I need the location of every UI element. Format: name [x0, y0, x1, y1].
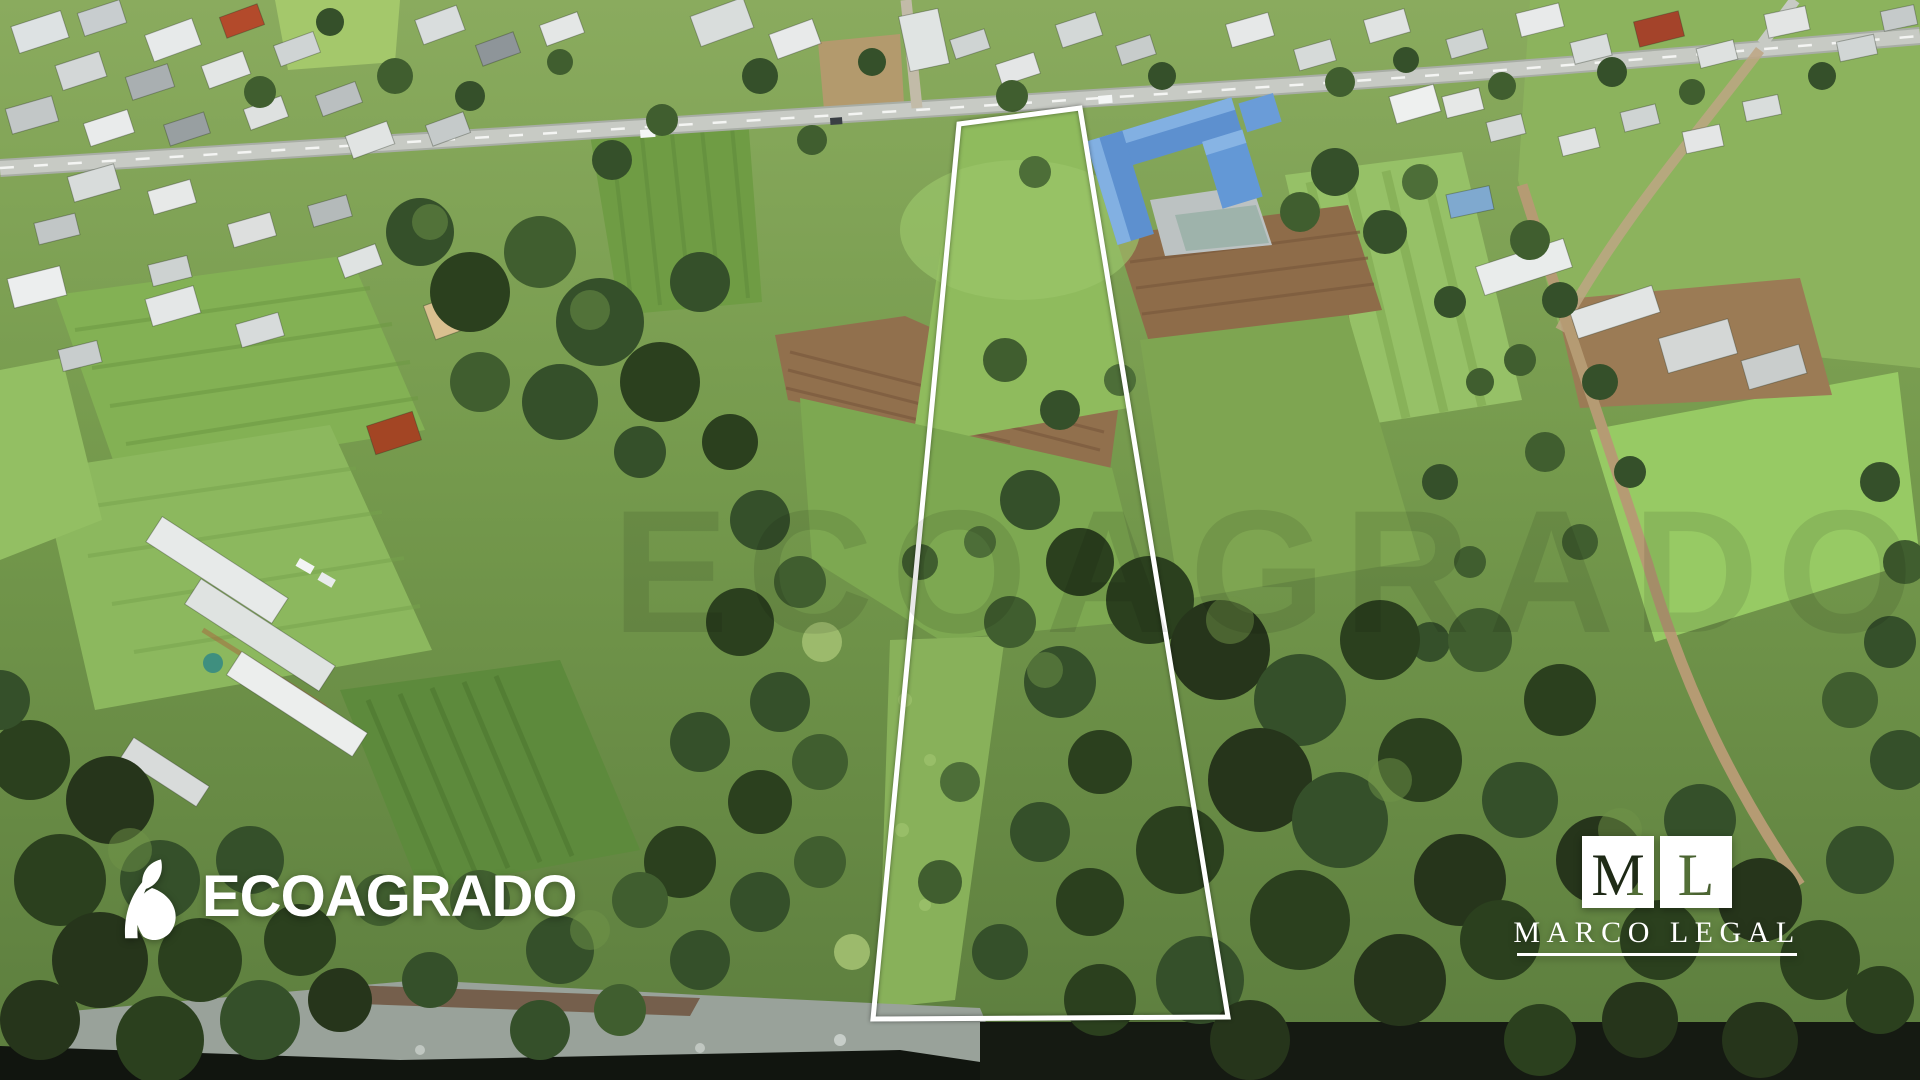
ecoagrado-logo: ECOAGRADO [116, 854, 576, 940]
watermark-text: ECOAGRADO [612, 475, 1920, 670]
marco-legal-logo: M L MARCO LEGAL [1500, 826, 1810, 971]
aerial-photo: ECOAGRADO ECOAGRADO M L MARCO LEGAL [0, 0, 1920, 1080]
ecoagrado-wordmark: ECOAGRADO [202, 868, 576, 926]
monogram-squares [1582, 836, 1732, 908]
leaf-icon [116, 854, 188, 940]
wordmark-underline [1517, 953, 1797, 956]
marco-legal-wordmark: MARCO LEGAL [1513, 916, 1800, 949]
water-tank [203, 653, 223, 673]
